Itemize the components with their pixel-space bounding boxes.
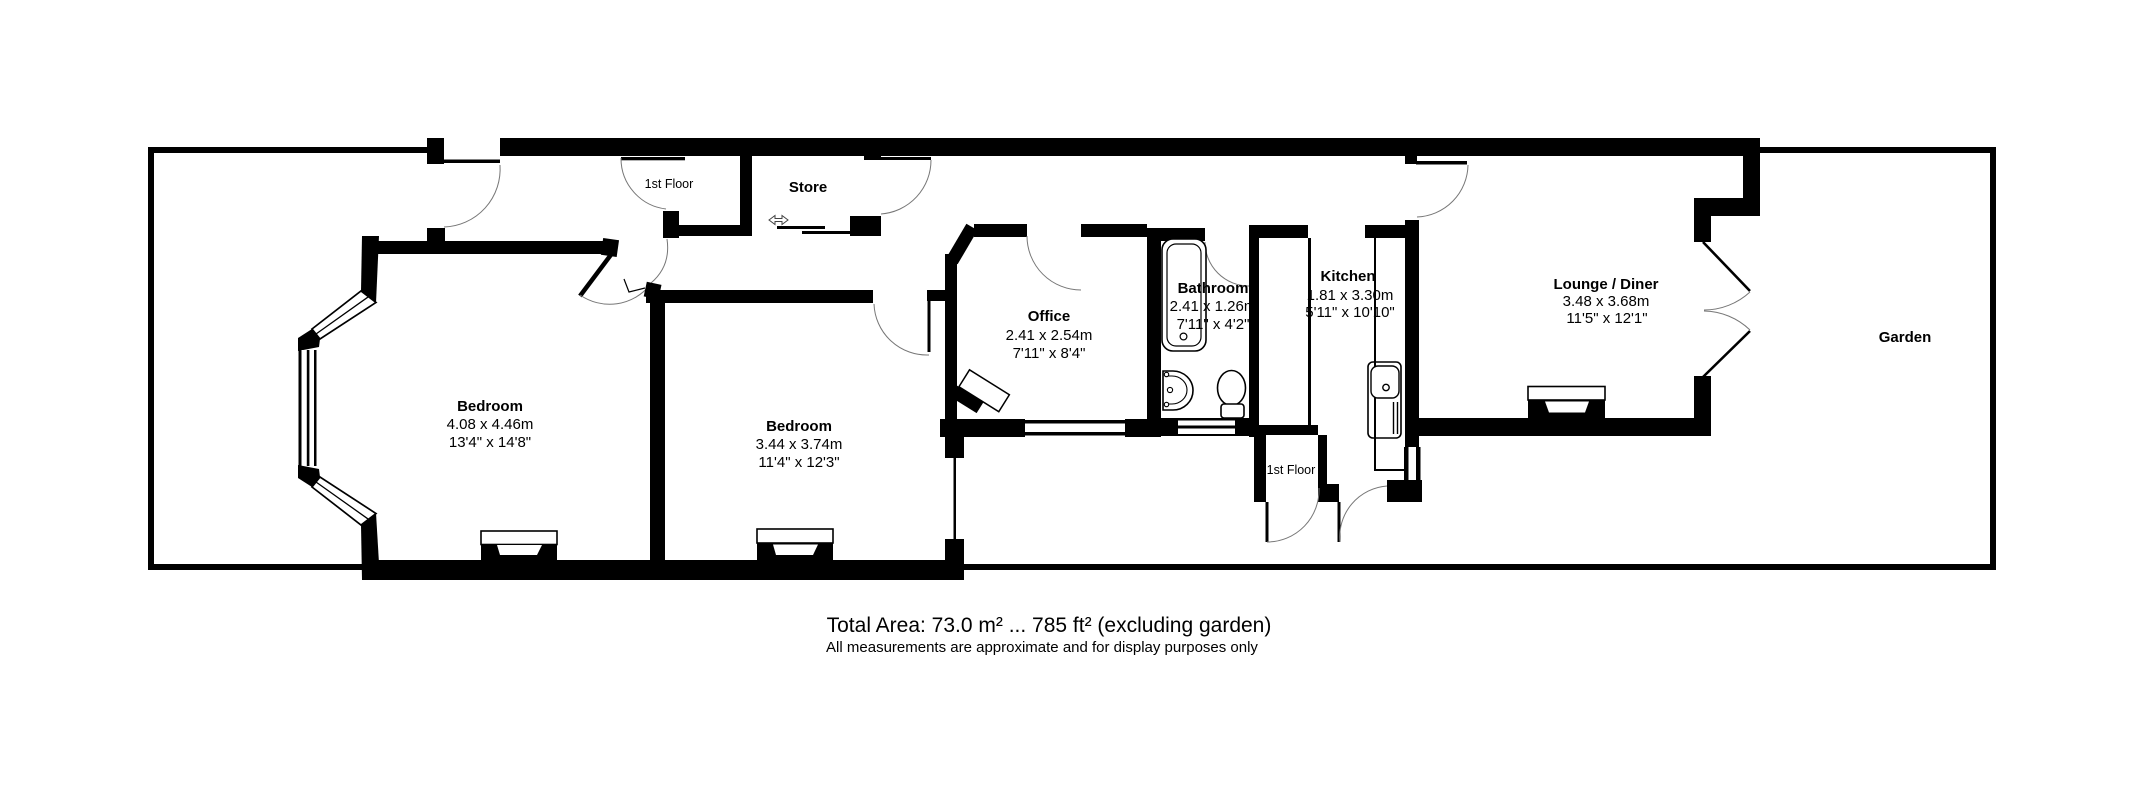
svg-text:3.48 x 3.68m: 3.48 x 3.68m bbox=[1563, 293, 1650, 310]
svg-text:1st Floor: 1st Floor bbox=[645, 177, 694, 191]
svg-text:7'11" x 8'4": 7'11" x 8'4" bbox=[1013, 345, 1086, 362]
svg-text:Office: Office bbox=[1028, 308, 1071, 325]
svg-text:Bedroom: Bedroom bbox=[457, 398, 523, 415]
svg-text:3.44 x 3.74m: 3.44 x 3.74m bbox=[756, 436, 843, 453]
svg-text:Bedroom: Bedroom bbox=[766, 418, 832, 435]
svg-text:Bathroom: Bathroom bbox=[1178, 280, 1249, 297]
svg-text:Kitchen: Kitchen bbox=[1320, 268, 1375, 285]
svg-text:5'11" x 10'10": 5'11" x 10'10" bbox=[1305, 304, 1395, 321]
svg-text:Garden: Garden bbox=[1879, 329, 1932, 346]
svg-text:Total Area: 73.0 m² ... 785 ft: Total Area: 73.0 m² ... 785 ft² (excludi… bbox=[827, 614, 1272, 637]
svg-text:Lounge / Diner: Lounge / Diner bbox=[1554, 276, 1659, 293]
svg-text:4.08 x 4.46m: 4.08 x 4.46m bbox=[447, 416, 534, 433]
svg-text:2.41 x 2.54m: 2.41 x 2.54m bbox=[1006, 327, 1093, 344]
svg-text:7'11" x 4'2": 7'11" x 4'2" bbox=[1177, 316, 1250, 333]
svg-text:2.41 x 1.26m: 2.41 x 1.26m bbox=[1170, 298, 1257, 315]
svg-text:All measurements are approxima: All measurements are approximate and for… bbox=[826, 639, 1258, 656]
svg-text:1st Floor: 1st Floor bbox=[1267, 463, 1316, 477]
svg-text:13'4" x 14'8": 13'4" x 14'8" bbox=[449, 434, 531, 451]
svg-text:Store: Store bbox=[789, 179, 827, 196]
svg-text:1.81 x 3.30m: 1.81 x 3.30m bbox=[1307, 287, 1394, 304]
svg-text:11'4" x 12'3": 11'4" x 12'3" bbox=[758, 454, 839, 471]
svg-text:11'5" x 12'1": 11'5" x 12'1" bbox=[1566, 310, 1647, 327]
